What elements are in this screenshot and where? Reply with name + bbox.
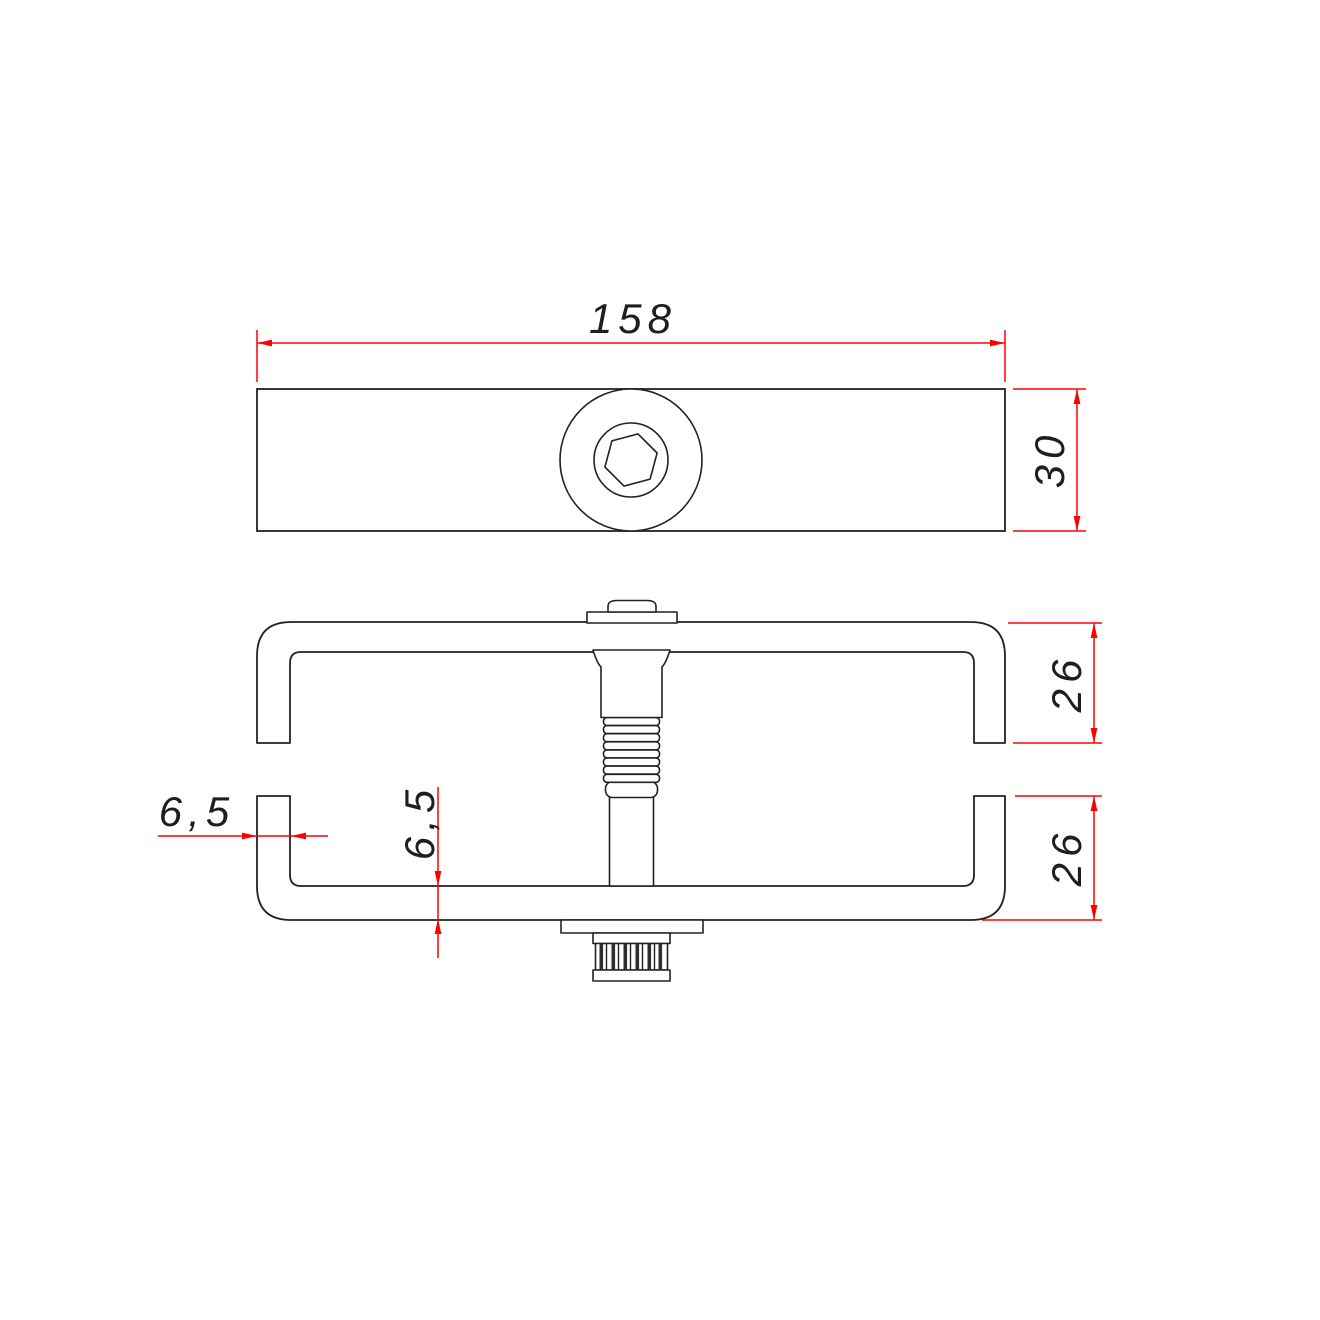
dim-label-side-wall-thickness: 6,5	[159, 788, 235, 835]
bolt-shank	[610, 795, 654, 886]
top-view	[257, 389, 1005, 531]
knob-cap	[593, 970, 670, 981]
bolt-collar	[606, 782, 658, 798]
arrowhead	[1074, 516, 1081, 531]
arrowhead	[242, 833, 257, 840]
knob-collar	[593, 933, 670, 944]
arrowhead	[1074, 389, 1081, 404]
bolt-top-plate	[587, 612, 677, 623]
arrowhead	[435, 871, 442, 886]
dim-label-lower-channel-depth: 26	[1043, 828, 1090, 888]
bolt-thread	[604, 718, 660, 783]
arrowhead	[990, 340, 1005, 347]
dim-label-bottom-wall-thickness: 6,5	[396, 784, 443, 860]
dim-label-upper-channel-depth: 26	[1043, 654, 1090, 714]
dim-label-total-width: 158	[589, 295, 677, 342]
arrowhead	[1091, 905, 1098, 920]
dim-label-bar-height: 30	[1026, 430, 1073, 489]
arrowhead	[291, 833, 306, 840]
arrowhead	[257, 340, 272, 347]
front-view	[257, 601, 1005, 982]
bolt-head	[593, 650, 670, 718]
bolt-bottom-plate	[561, 920, 703, 933]
arrowhead	[435, 919, 442, 934]
arrowhead	[1091, 623, 1098, 638]
bolt-dome-cap	[608, 601, 656, 613]
technical-drawing-canvas: 158 30 26 26 6,5 6,5	[0, 0, 1320, 1320]
arrowhead	[1091, 728, 1098, 743]
clamp-bolt	[561, 601, 703, 982]
arrowhead	[1091, 796, 1098, 811]
drawing-page: 158 30 26 26 6,5 6,5	[0, 0, 1320, 1320]
